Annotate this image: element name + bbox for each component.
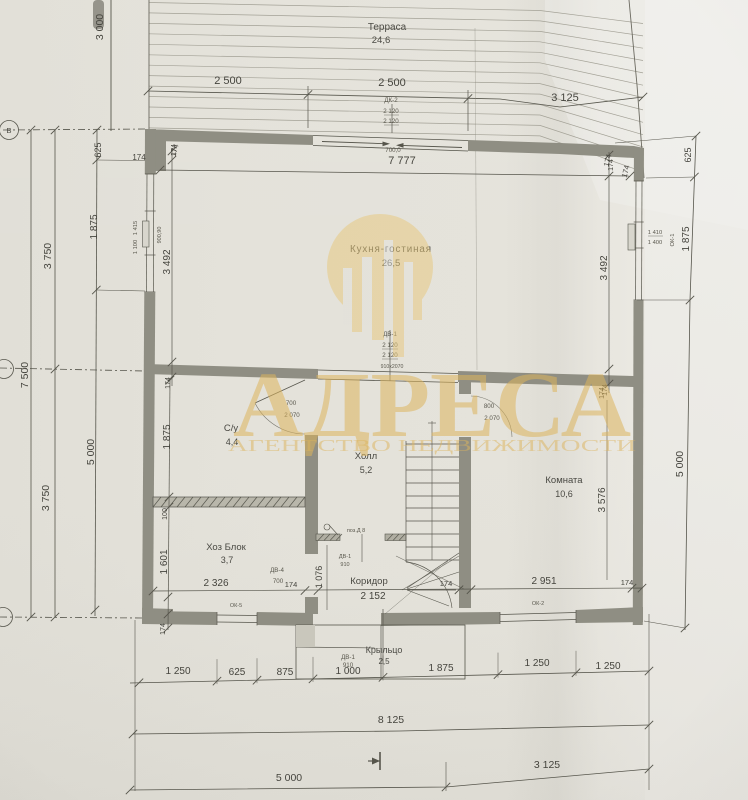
svg-text:7 500: 7 500 [19, 362, 31, 388]
svg-text:24,6: 24,6 [372, 35, 391, 46]
svg-text:Коридор: Коридор [350, 576, 388, 587]
svg-text:174: 174 [160, 623, 167, 635]
svg-text:7 777: 7 777 [388, 155, 416, 167]
svg-text:3,7: 3,7 [221, 555, 234, 565]
svg-text:2 120: 2 120 [383, 108, 399, 115]
svg-text:В: В [6, 126, 11, 135]
svg-text:5 000: 5 000 [674, 451, 686, 477]
svg-text:1 000: 1 000 [335, 666, 360, 677]
svg-text:Комната: Комната [545, 475, 583, 486]
svg-text:АГЕНТСТВО НЕДВИЖИМОСТИ: АГЕНТСТВО НЕДВИЖИМОСТИ [228, 436, 636, 455]
svg-text:Терраса: Терраса [368, 22, 407, 33]
svg-text:2 120: 2 120 [383, 118, 399, 125]
svg-text:2,5: 2,5 [378, 657, 390, 666]
svg-text:100: 100 [162, 508, 169, 520]
svg-text:910: 910 [340, 562, 349, 568]
svg-text:174: 174 [132, 153, 146, 162]
svg-text:700: 700 [273, 578, 284, 585]
svg-text:2 500: 2 500 [214, 75, 242, 87]
svg-text:625: 625 [229, 667, 246, 678]
svg-text:1 076: 1 076 [314, 566, 324, 589]
svg-text:900,90: 900,90 [157, 227, 163, 244]
svg-text:5 000: 5 000 [276, 772, 302, 784]
svg-text:3 492: 3 492 [162, 249, 173, 274]
svg-text:3 125: 3 125 [534, 759, 560, 771]
svg-text:1 100: 1 100 [133, 240, 139, 255]
svg-text:1 415: 1 415 [133, 221, 139, 236]
svg-text:1 250: 1 250 [165, 666, 190, 677]
svg-text:1 601: 1 601 [159, 549, 170, 574]
svg-text:Хоз Блок: Хоз Блок [206, 542, 246, 553]
svg-text:1 875: 1 875 [162, 424, 173, 449]
svg-text:1 400: 1 400 [648, 240, 663, 246]
svg-text:174: 174 [285, 580, 298, 589]
svg-text:1 875: 1 875 [89, 214, 100, 239]
svg-text:174: 174 [621, 578, 634, 587]
svg-text:1 250: 1 250 [595, 661, 620, 672]
svg-text:625: 625 [683, 147, 693, 162]
svg-text:ДВ-4: ДВ-4 [270, 567, 284, 574]
svg-text:3 125: 3 125 [551, 92, 579, 104]
svg-text:1 875: 1 875 [681, 226, 692, 251]
svg-text:8 125: 8 125 [378, 714, 404, 726]
svg-text:2 951: 2 951 [531, 576, 556, 587]
svg-text:Крыльцо: Крыльцо [366, 645, 403, 655]
svg-text:2 326: 2 326 [203, 578, 228, 589]
svg-text:ДВ-1: ДВ-1 [339, 554, 351, 560]
svg-text:5 000: 5 000 [85, 439, 97, 465]
svg-text:2 500: 2 500 [378, 77, 406, 89]
svg-text:875: 875 [277, 667, 294, 678]
svg-text:ОК-1: ОК-1 [670, 233, 676, 246]
svg-text:поз.Д 8: поз.Д 8 [347, 528, 365, 534]
svg-text:2 152: 2 152 [360, 591, 385, 602]
svg-text:3 750: 3 750 [42, 243, 54, 269]
svg-text:3 576: 3 576 [597, 487, 608, 512]
svg-text:10,6: 10,6 [555, 489, 573, 499]
svg-text:625: 625 [93, 142, 103, 157]
svg-text:1 410: 1 410 [648, 230, 663, 236]
svg-text:1 875: 1 875 [428, 663, 453, 674]
svg-text:ДВ-1: ДВ-1 [341, 654, 355, 661]
svg-text:5,2: 5,2 [360, 465, 373, 475]
svg-text:3 750: 3 750 [40, 485, 52, 511]
svg-text:174: 174 [440, 579, 453, 588]
svg-text:ОК-5: ОК-5 [230, 603, 242, 609]
svg-text:ОК-2: ОК-2 [532, 601, 544, 607]
svg-text:3 492: 3 492 [599, 255, 610, 280]
svg-text:ДК-2: ДК-2 [384, 97, 398, 104]
svg-text:3 000: 3 000 [94, 14, 106, 40]
svg-text:1 250: 1 250 [524, 658, 549, 669]
